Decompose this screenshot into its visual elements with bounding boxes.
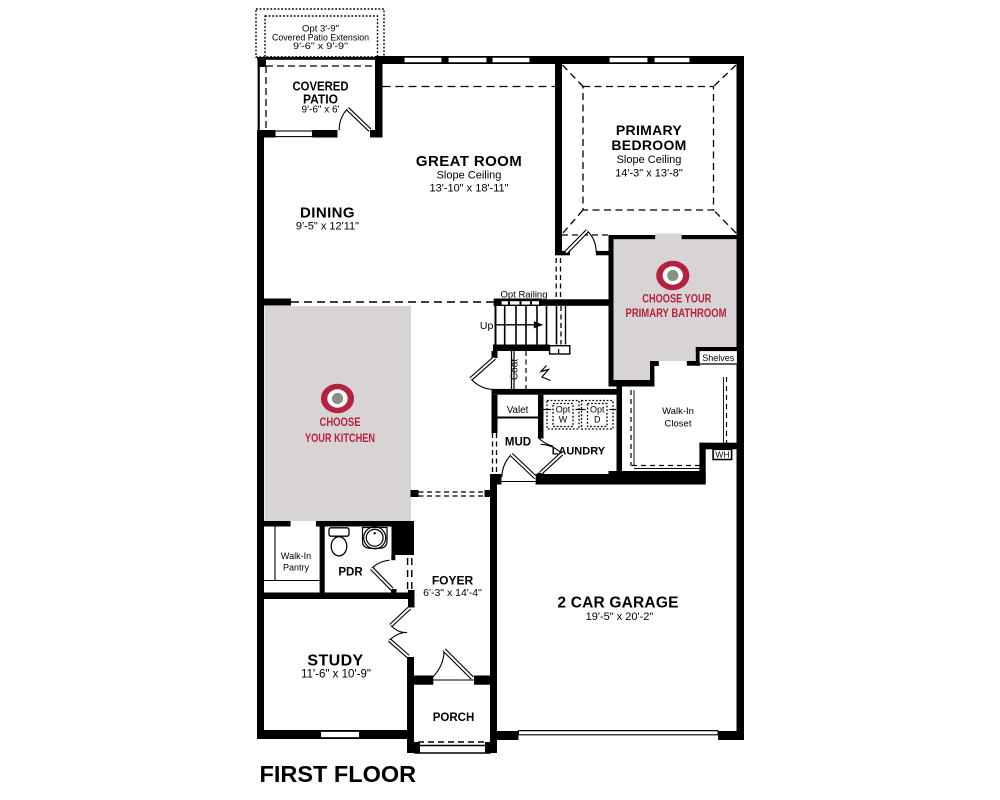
svg-text:13'-10" x 18'-11": 13'-10" x 18'-11" [429,183,508,195]
svg-text:Slope Ceiling: Slope Ceiling [617,154,682,166]
svg-text:YOUR KITCHEN: YOUR KITCHEN [305,433,375,445]
svg-text:MUD: MUD [505,437,531,449]
svg-text:Valet: Valet [507,405,529,416]
svg-text:CHOOSE: CHOOSE [320,417,361,429]
svg-text:WH: WH [715,450,729,460]
svg-text:BEDROOM: BEDROOM [611,137,686,153]
svg-text:D: D [594,415,601,425]
svg-text:Opt: Opt [590,404,605,414]
svg-text:Walk-In: Walk-In [281,551,311,561]
svg-text:11'-6" x 10'-9": 11'-6" x 10'-9" [301,669,371,681]
svg-text:Opt Railing: Opt Railing [501,290,548,301]
svg-text:PDR: PDR [338,567,363,579]
svg-text:9'-6" x 9'-9": 9'-6" x 9'-9" [293,41,348,51]
svg-text:Shelves: Shelves [702,353,735,363]
svg-text:Opt: Opt [556,404,571,414]
svg-text:Closet: Closet [665,419,692,430]
svg-text:PRIMARY: PRIMARY [616,122,683,138]
svg-text:CHOOSE YOUR: CHOOSE YOUR [642,294,712,306]
svg-text:Coat: Coat [510,359,521,380]
svg-text:Pantry: Pantry [283,562,310,572]
svg-text:19'-5" x 20'-2": 19'-5" x 20'-2" [586,611,654,623]
svg-text:FOYER: FOYER [432,574,474,588]
svg-text:2 CAR GARAGE: 2 CAR GARAGE [557,595,678,612]
svg-text:COVERED: COVERED [293,80,349,94]
svg-text:W: W [559,415,568,425]
svg-text:STUDY: STUDY [307,653,363,670]
svg-text:GREAT ROOM: GREAT ROOM [416,153,522,170]
svg-text:14'-3" x 13'-8": 14'-3" x 13'-8" [615,168,683,180]
svg-text:Walk-In: Walk-In [662,406,694,417]
svg-text:Slope Ceiling: Slope Ceiling [437,170,502,182]
svg-text:9'-5" x 12'11": 9'-5" x 12'11" [296,221,359,233]
svg-text:PORCH: PORCH [433,712,475,724]
svg-text:9'-6" x 6': 9'-6" x 6' [302,105,340,116]
svg-text:Up: Up [480,320,494,332]
svg-text:FIRST FLOOR: FIRST FLOOR [260,761,417,787]
svg-text:6'-3" x 14'-4": 6'-3" x 14'-4" [423,587,482,599]
svg-text:PRIMARY BATHROOM: PRIMARY BATHROOM [626,308,727,320]
svg-text:DINING: DINING [300,205,355,222]
